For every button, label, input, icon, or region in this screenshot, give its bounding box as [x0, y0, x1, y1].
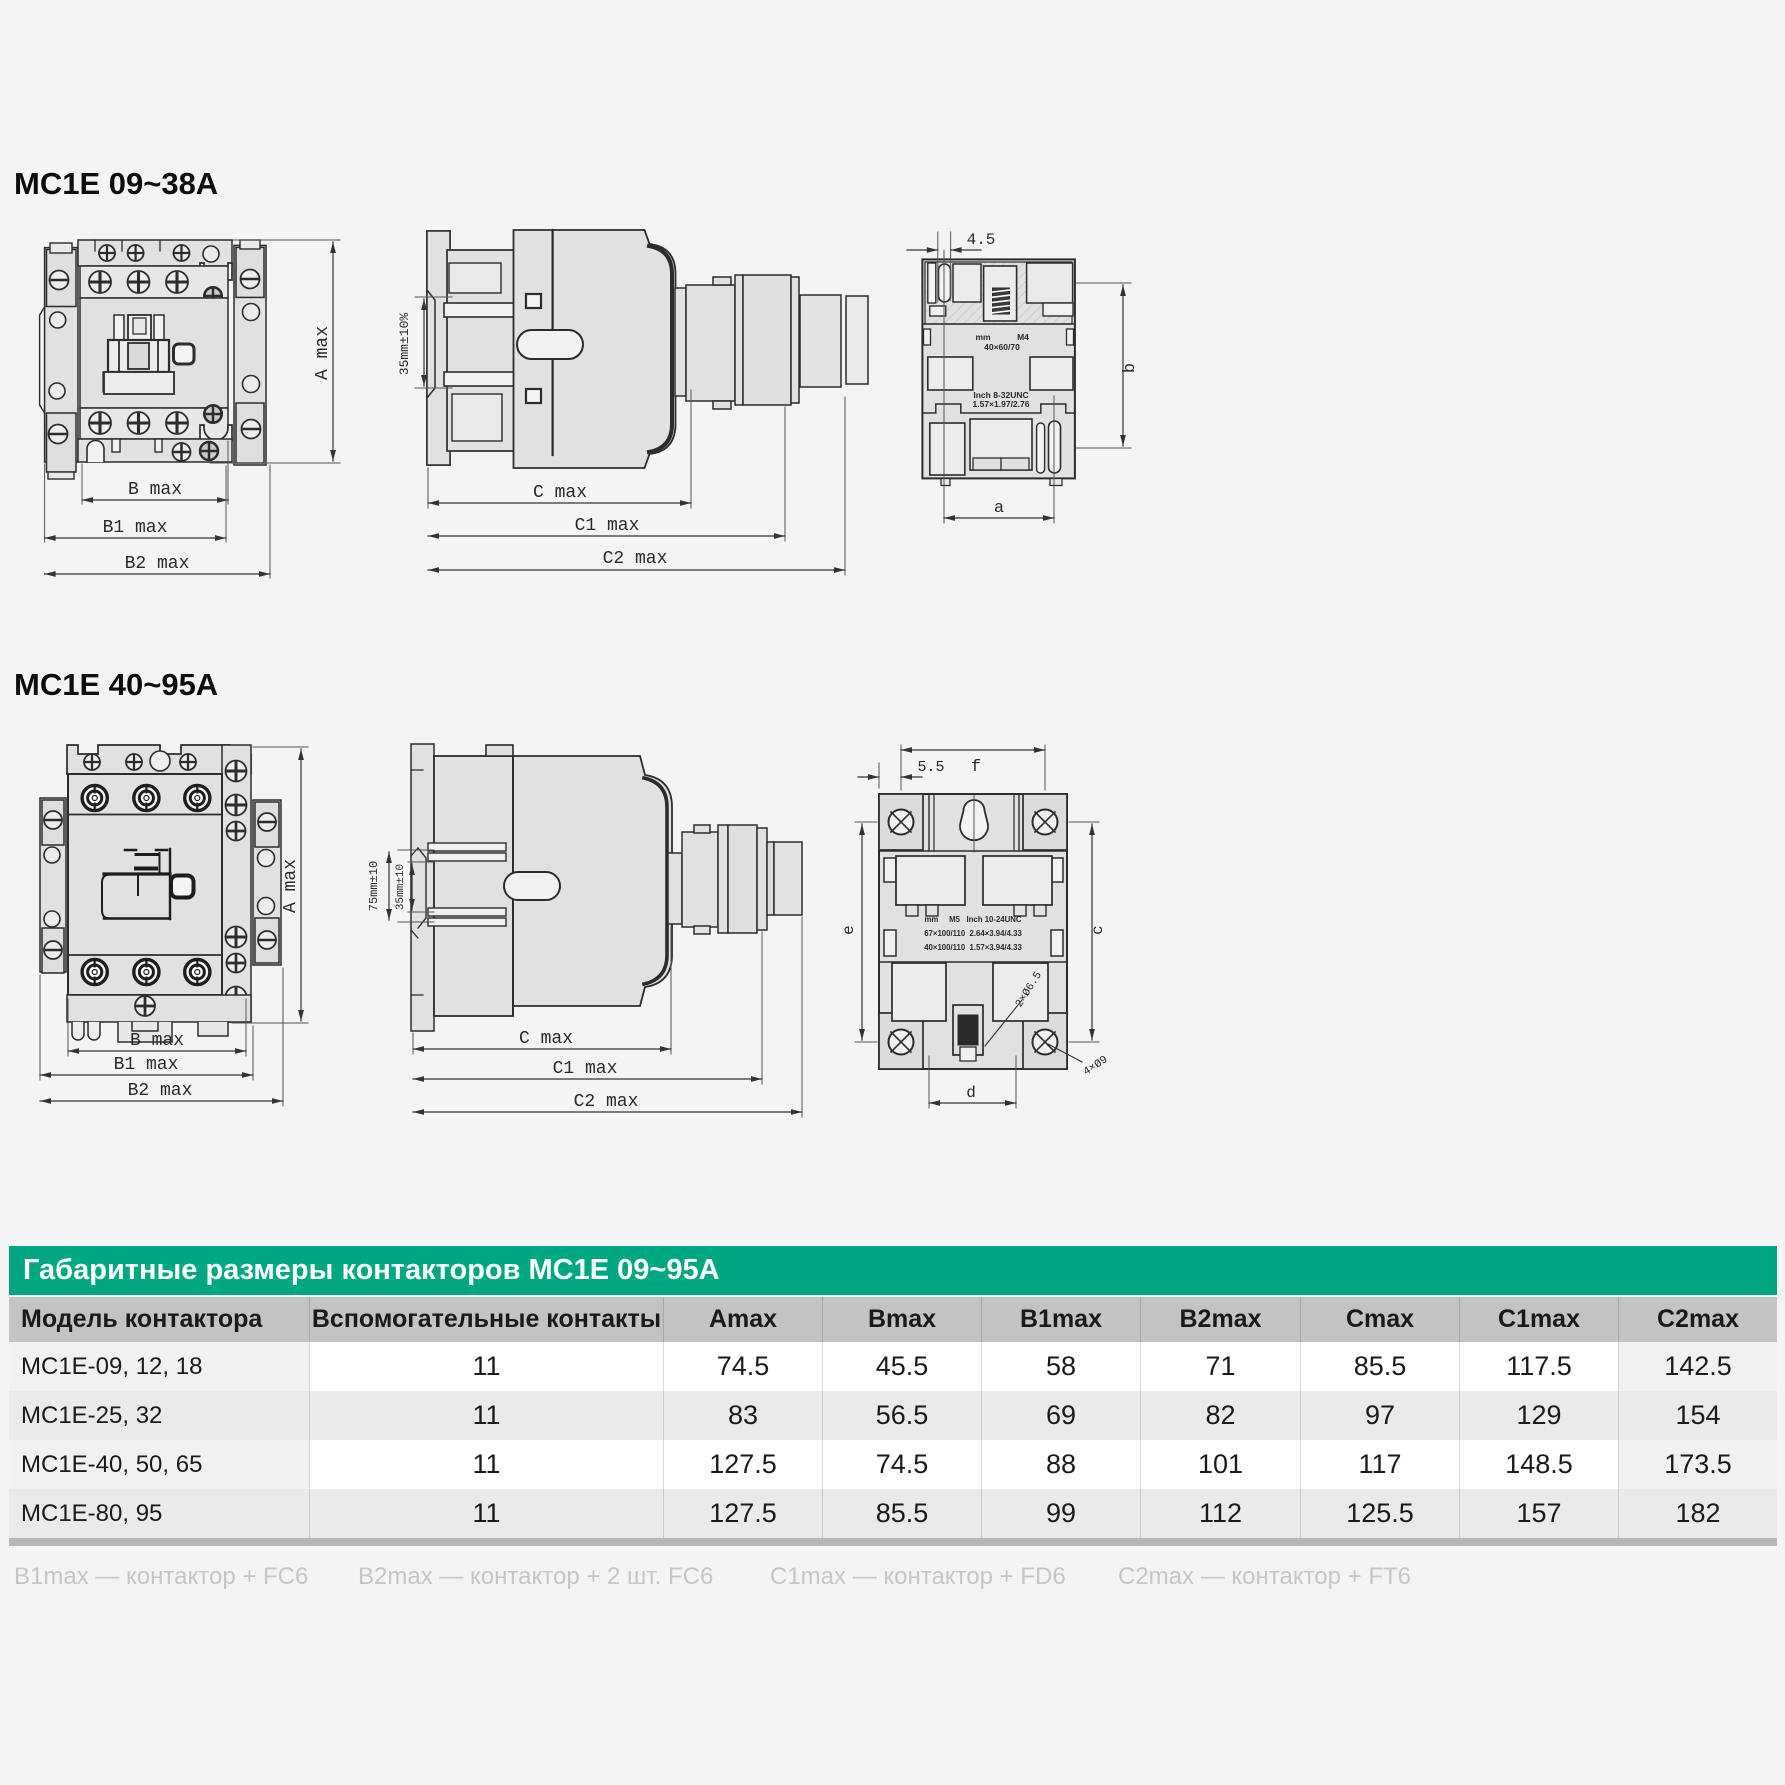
svg-text:75mm±10: 75mm±10 — [367, 861, 381, 911]
svg-text:C max: C max — [519, 1029, 573, 1049]
svg-text:C2 max: C2 max — [603, 549, 668, 569]
svg-text:d: d — [966, 1084, 976, 1102]
svg-text:mm: mm — [975, 332, 991, 342]
svg-text:5.5: 5.5 — [917, 759, 944, 776]
svg-text:C2 max: C2 max — [574, 1092, 639, 1112]
svg-text:4.5: 4.5 — [967, 231, 996, 249]
svg-text:B2 max: B2 max — [128, 1081, 193, 1101]
svg-text:1.57×1.97/2.76: 1.57×1.97/2.76 — [973, 399, 1030, 409]
svg-text:M4: M4 — [1017, 332, 1029, 342]
svg-text:4×Ø9: 4×Ø9 — [1082, 1054, 1111, 1078]
svg-text:A max: A max — [281, 859, 301, 913]
svg-text:e: e — [840, 925, 858, 935]
svg-text:a: a — [994, 499, 1004, 518]
svg-text:C1 max: C1 max — [553, 1059, 618, 1079]
svg-text:67×100/110 2.64×3.94/4.33: 67×100/110 2.64×3.94/4.33 — [924, 929, 1022, 938]
svg-text:B1 max: B1 max — [114, 1055, 179, 1075]
svg-text:C1 max: C1 max — [575, 516, 640, 536]
svg-text:c: c — [1089, 925, 1107, 935]
svg-text:B max: B max — [130, 1031, 184, 1051]
svg-text:C max: C max — [533, 483, 587, 503]
svg-text:f: f — [971, 758, 981, 777]
svg-text:b: b — [1121, 363, 1140, 373]
svg-text:B2 max: B2 max — [125, 554, 190, 574]
svg-text:B max: B max — [128, 480, 182, 500]
svg-text:40×60/70: 40×60/70 — [984, 342, 1020, 352]
svg-text:A max: A max — [313, 326, 333, 380]
svg-text:B1 max: B1 max — [103, 518, 168, 538]
svg-text:35mm±10%: 35mm±10% — [397, 313, 412, 376]
svg-text:40×100/110 1.57×3.94/4.33: 40×100/110 1.57×3.94/4.33 — [924, 943, 1022, 952]
svg-text:mm M5 Inch 10-24UNC: mm M5 Inch 10-24UNC — [924, 915, 1021, 924]
svg-text:35mm±10: 35mm±10 — [395, 864, 407, 910]
